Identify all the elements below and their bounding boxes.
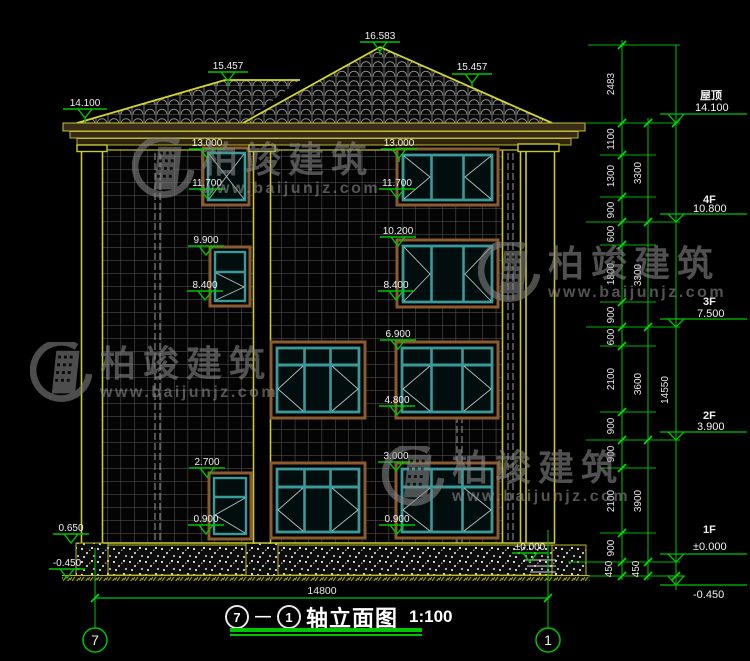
title-dash: — bbox=[255, 608, 271, 626]
elevation-marker-text: 15.457 bbox=[457, 62, 488, 73]
window-1f-left bbox=[271, 463, 365, 538]
level-value: 14.100 bbox=[695, 102, 729, 114]
dim-value: 1300 bbox=[606, 164, 617, 187]
elevation-marker-text: 15.457 bbox=[213, 61, 244, 72]
dim-value: 450 bbox=[631, 560, 642, 577]
level-value: 3.900 bbox=[697, 421, 725, 433]
elevation-marker-text: 16.583 bbox=[365, 31, 396, 42]
cad-drawing: 16.583 15.457 15.457 14.100 13.000 13.00… bbox=[0, 0, 750, 661]
dim-value: 2100 bbox=[606, 489, 617, 512]
elevation-marker-text: 11.700 bbox=[192, 178, 222, 189]
pilaster-middle bbox=[253, 150, 271, 543]
window-3f-small bbox=[210, 247, 250, 306]
roof bbox=[77, 47, 552, 123]
elevation-marker-text: 0.900 bbox=[193, 514, 218, 525]
dim-value: 2100 bbox=[606, 367, 617, 390]
pilaster-left bbox=[81, 150, 103, 543]
dim-value: 3300 bbox=[633, 263, 644, 286]
elevation-marker-text: 13.000 bbox=[192, 138, 223, 149]
title-axis-circle-right: 1 bbox=[277, 605, 301, 629]
elevation-marker-text: 8.400 bbox=[192, 280, 217, 291]
dim-total: 14550 bbox=[660, 376, 671, 404]
title-underline-thin bbox=[230, 634, 422, 636]
plinth bbox=[76, 543, 586, 577]
elevation-marker-text: 8.400 bbox=[383, 280, 408, 291]
elevation-marker-text: 10.200 bbox=[383, 226, 414, 237]
axis-bubble-left-label: 7 bbox=[91, 632, 99, 648]
level-label: 1F bbox=[703, 524, 716, 536]
eave-cornice bbox=[63, 123, 585, 145]
title-axis-circle-left: 7 bbox=[225, 605, 249, 629]
elevation-marker-text: 14.100 bbox=[70, 98, 101, 109]
window-3f-large bbox=[397, 240, 498, 307]
elevation-marker-text: 2.700 bbox=[194, 457, 219, 468]
elevation-marker-text: 9.900 bbox=[193, 235, 218, 246]
elevation-marker-text: 13.000 bbox=[384, 138, 415, 149]
window-1f-small bbox=[209, 473, 251, 539]
level-label: 3F bbox=[703, 296, 716, 308]
dim-value: 900 bbox=[606, 539, 617, 556]
elevation-marker-text: 6.900 bbox=[385, 329, 410, 340]
dim-value: 3300 bbox=[633, 161, 644, 184]
elevation-marker-text: 0.650 bbox=[58, 523, 83, 534]
floor-levels-right: 屋顶 14.100 4F 10.800 3F 7.500 2F 3.900 1F… bbox=[660, 89, 747, 601]
elevation-marker-text: -0.450 bbox=[53, 558, 82, 569]
level-value: -0.450 bbox=[693, 589, 724, 601]
dim-value: 1800 bbox=[606, 262, 617, 285]
level-label: 屋顶 bbox=[700, 89, 722, 102]
window-1f-right bbox=[396, 463, 498, 538]
window-4f-small bbox=[203, 148, 249, 205]
elevation-marker-text: 3.000 bbox=[383, 451, 408, 462]
dim-value: 450 bbox=[604, 560, 615, 577]
elevation-marker-text: 11.700 bbox=[382, 178, 412, 189]
elevation-marker-text: ±0.000 bbox=[515, 542, 546, 553]
elevation-drawing-canvas: 16.583 15.457 15.457 14.100 13.000 13.00… bbox=[0, 0, 750, 661]
dim-value: 1100 bbox=[606, 128, 617, 150]
dim-value: 3600 bbox=[633, 372, 644, 395]
level-value: ±0.000 bbox=[693, 541, 727, 553]
dim-value: 900 bbox=[606, 445, 617, 462]
dim-bottom-value: 14800 bbox=[307, 585, 336, 597]
title-underline-thick bbox=[230, 628, 422, 632]
dim-value: 900 bbox=[606, 201, 617, 218]
dim-value: 3900 bbox=[633, 489, 644, 512]
dim-value: 900 bbox=[606, 417, 617, 434]
dim-value: 2483 bbox=[606, 72, 617, 95]
elevation-marker-text: 4.800 bbox=[384, 395, 409, 406]
dim-value: 900 bbox=[606, 306, 617, 323]
level-value: 10.800 bbox=[693, 203, 727, 215]
window-2f-left bbox=[271, 342, 365, 418]
dim-value: 600 bbox=[606, 225, 617, 242]
dim-value: 600 bbox=[606, 328, 617, 345]
level-value: 7.500 bbox=[697, 308, 725, 320]
elevation-marker-text: 0.900 bbox=[384, 514, 409, 525]
title-scale: 1:100 bbox=[409, 607, 452, 627]
axis-bubble-right-label: 1 bbox=[544, 632, 552, 648]
window-4f-large bbox=[397, 149, 498, 205]
pilaster-right bbox=[502, 150, 555, 543]
